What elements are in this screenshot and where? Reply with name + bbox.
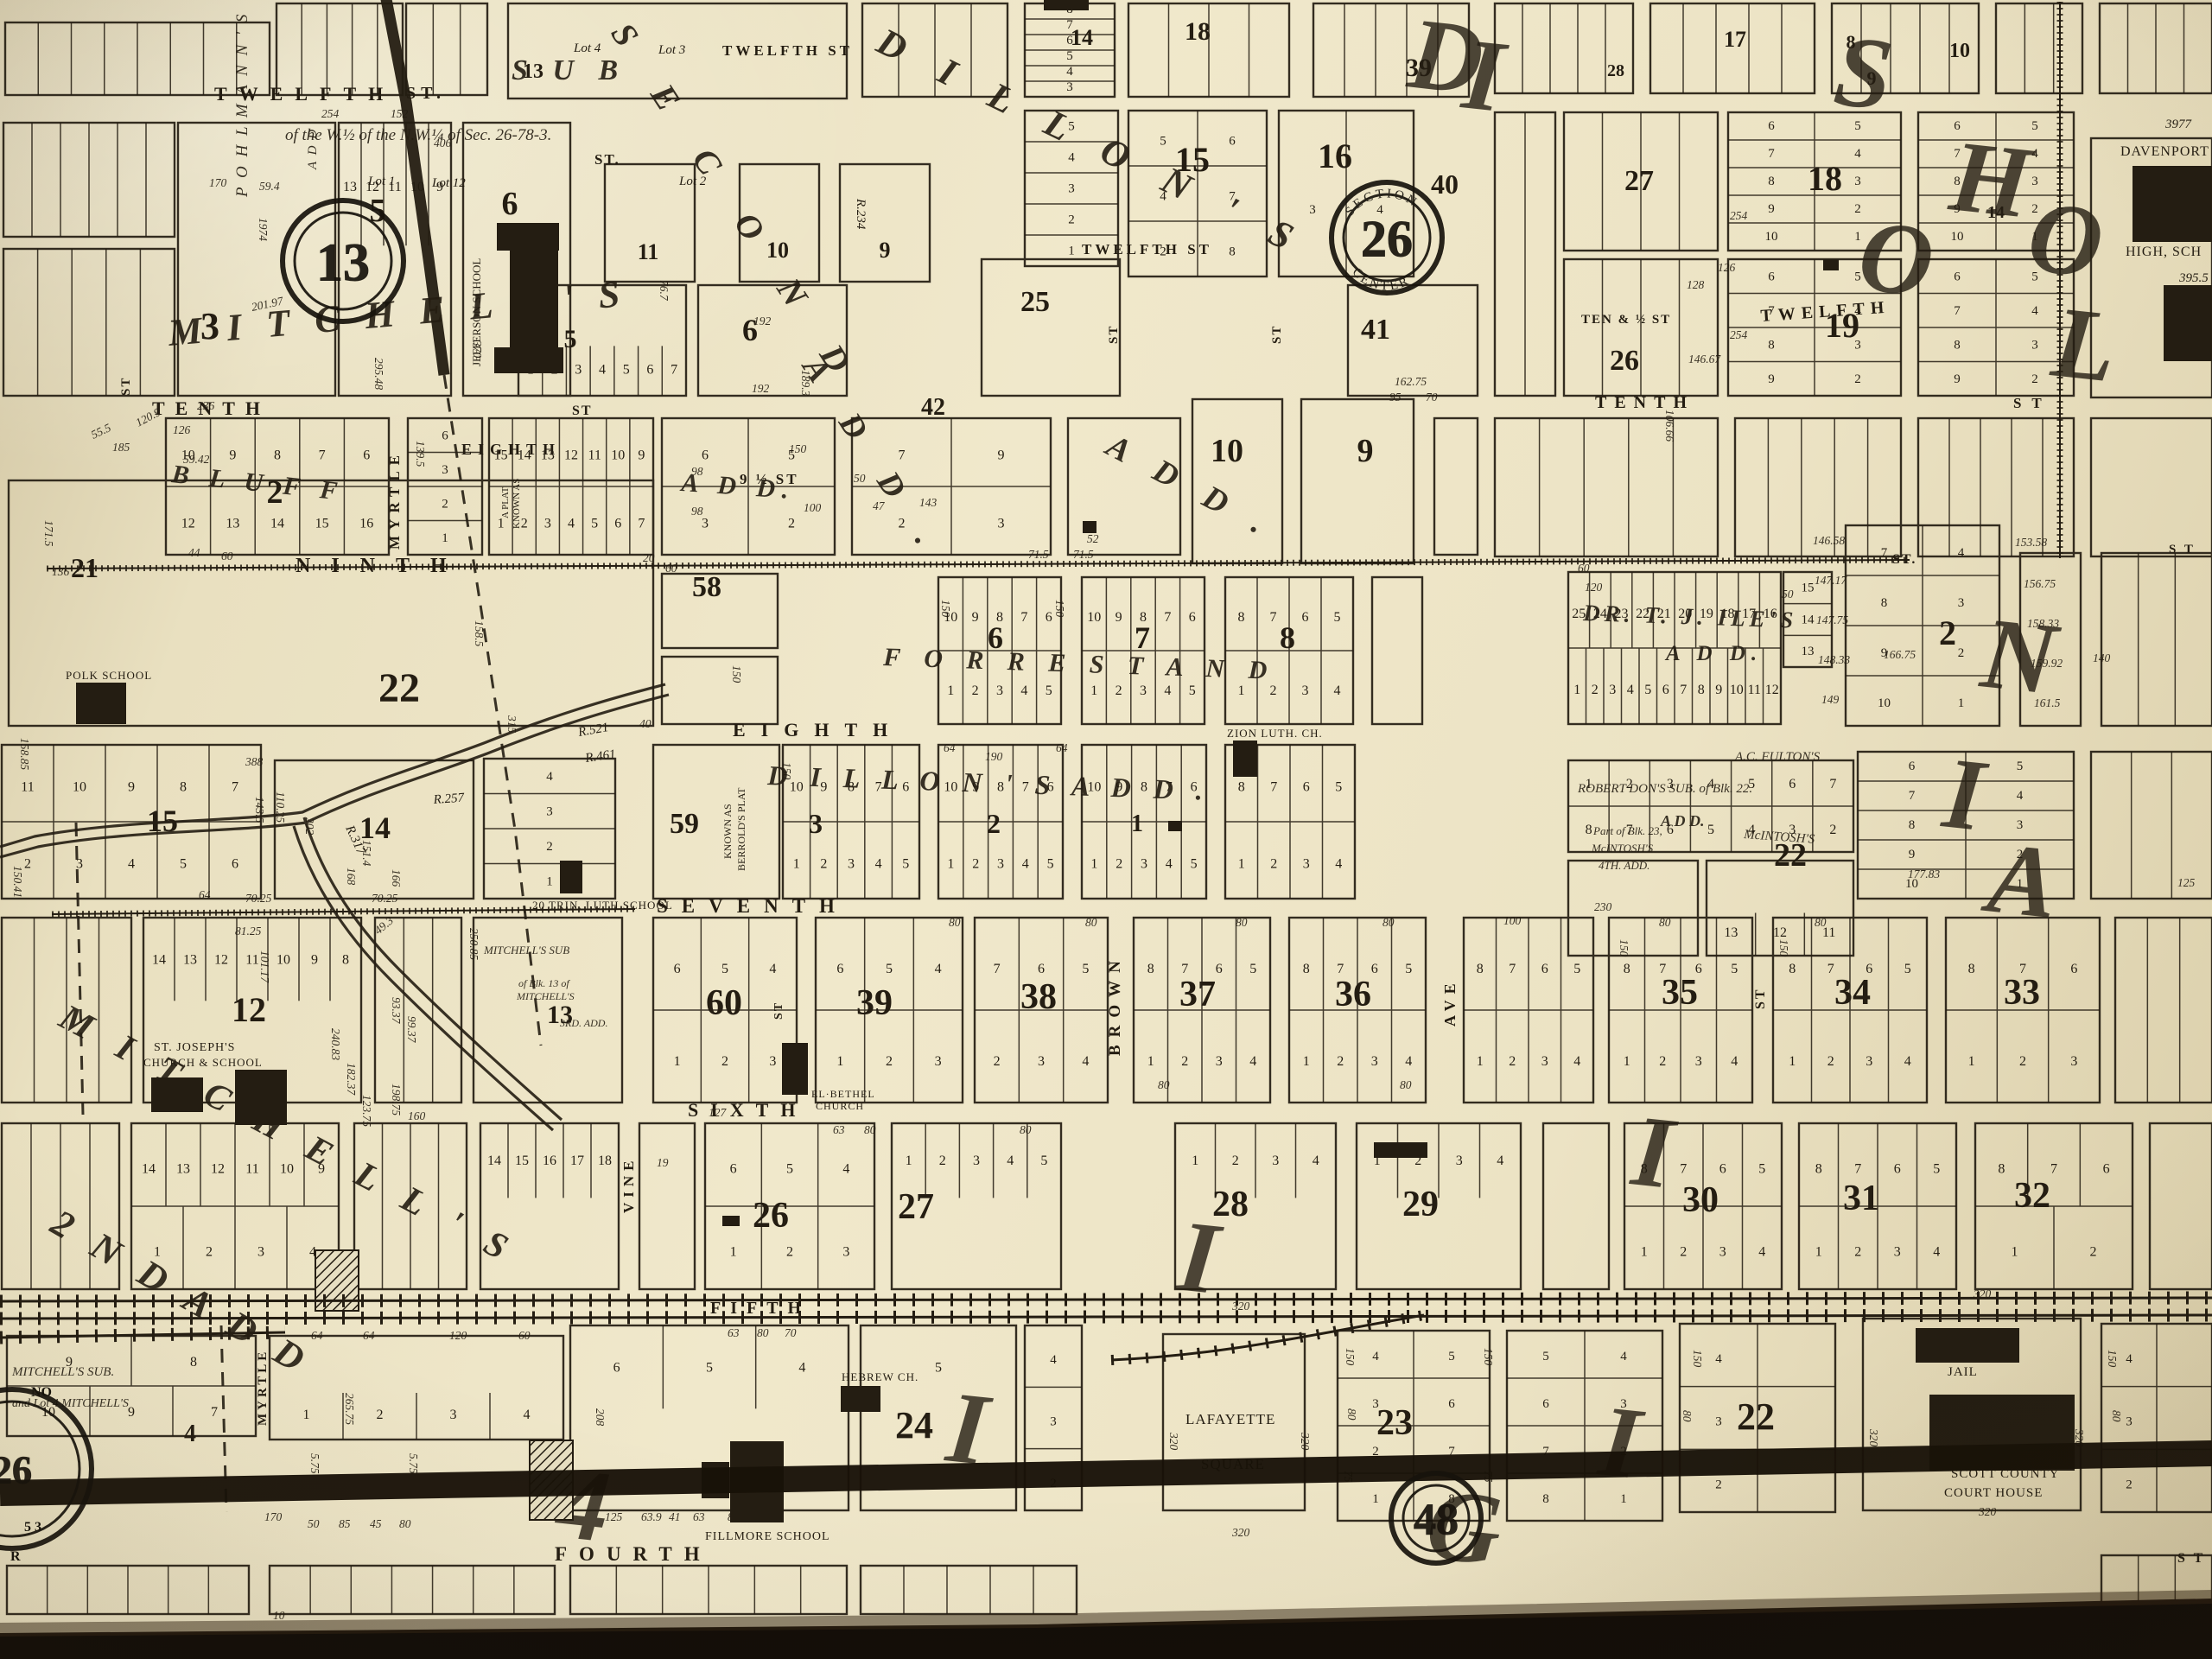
dimension-label: 150.41 [11,866,24,898]
street-label: TWELFTH ST [722,42,853,59]
lot-number: 4 [1573,1054,1580,1069]
lot-number: 6 [613,1361,620,1376]
dimension-label: 192 [752,382,770,395]
lot-number: 2 [1270,856,1277,871]
lot-number: 3 [1141,856,1147,871]
block-number: 3 [200,305,219,347]
dimension-label: 5.75 [308,1453,321,1474]
block [1495,418,1718,556]
dimension-label: 388 [245,755,264,768]
lot-number: 2 [2019,1054,2026,1069]
dimension-label: 150 [939,600,952,618]
lot-number: 12 [211,1162,225,1177]
ghost-letter: I [1625,1093,1681,1211]
lot-number: 9 [998,448,1005,462]
block-number: 36 [1335,975,1371,1014]
dimension-label: 320 [1231,1526,1250,1539]
stamp-number: 26 [1361,211,1413,268]
addition-label: of Blk. 13 of [518,977,570,989]
lot-number: 6 [1662,683,1669,697]
lot-number: 4 [1904,1054,1911,1069]
block-number: 2 [1939,613,1956,652]
annotation-label: A PLAT [500,486,511,518]
building [2133,166,2212,242]
lot-number: 7 [1768,147,1775,161]
dimension-label: 80 [757,1326,769,1339]
dimension-label: 170 [264,1510,283,1523]
building [1168,821,1182,831]
street-label: ST [572,404,593,418]
lot-number: 1 [836,1054,843,1069]
block [1434,418,1478,555]
street-label: ST [119,377,133,396]
lot-number: 1 [947,856,954,871]
lot-number: 3 [2070,1054,2077,1069]
lot-number: 13 [183,953,197,968]
block-number: 31 [1843,1179,1879,1218]
lot-number: 4 [1627,683,1634,697]
lot-number: 1 [1090,683,1097,698]
lot-number: 1 [2012,1245,2018,1260]
dimension-label: 171.5 [42,520,55,547]
lot-number: 7 [1827,962,1834,976]
lot-number: 8 [1477,962,1484,976]
lot-number: 6 [1303,779,1310,794]
block [662,657,778,724]
block [270,1566,555,1614]
dimension-label: 150 [1618,939,1630,957]
lot-number: 1 [1477,1054,1484,1069]
dimension-label: 95 [1389,391,1402,404]
dimension-label: 100 [1503,914,1522,927]
lot-number: 7 [1680,1162,1687,1177]
lot-number: 8 [1586,823,1592,837]
stamp-number: 13 [316,233,370,292]
lot-number: 4 [1164,683,1171,698]
annotation-label: KNOWN AS [512,479,522,529]
street-label: EIGHTH [461,441,561,458]
block-number: 9 [1867,67,1877,89]
lot-number: 3 [1371,1054,1378,1069]
lot-number: 2 [206,1245,213,1260]
dimension-label: 143.5 [253,797,266,823]
lot-number: 6 [1909,760,1916,773]
lot-number: 3 [544,516,551,531]
note-label: R.234 [854,198,868,230]
addition-label: A D D . [1099,427,1281,547]
block-number: 25 [1020,286,1050,318]
street-label: SEVENTH [657,895,849,917]
landmark-label: CHURCH [816,1100,864,1112]
block-number: 10 [1949,40,1970,62]
lot-number: 5 [1731,962,1738,976]
lot-number: 8 [1229,245,1236,259]
dimension-label: 236 [197,399,215,412]
block [1372,577,1422,724]
lot-number: 2 [721,1054,728,1069]
landmark-label: JAIL [1948,1365,1978,1379]
street-label: BROWN [1106,953,1124,1056]
lot-number: 10 [280,1162,294,1177]
lot-number: 4 [1066,65,1073,79]
lot-number: 5 [786,1162,793,1177]
addition-label: MITCHELL'S SUB [483,944,569,957]
lot-number: 4 [1372,1350,1379,1363]
dimension-label: 80 [1345,1408,1358,1421]
lot-number: 5 [935,1361,942,1376]
block-number: 38 [1020,977,1057,1017]
dimension-label: 254 [321,107,340,120]
dimension-label: 50 [1782,588,1794,601]
lot-number: 4 [769,962,776,976]
lot-number: 4 [1335,856,1342,871]
lot-number: 6 [836,962,843,976]
lot-number: 1 [1854,230,1861,244]
dimension-label: 185 [112,441,130,454]
lot-number: 3 [998,516,1005,531]
lot-number: 6 [1894,1162,1901,1177]
lot-number: 3 [848,856,855,871]
dimension-label: 63.9 [641,1510,662,1523]
lot-number: 6 [674,962,681,976]
dimension-label: 5.75 [407,1453,420,1474]
dimension-label: 370 [471,340,484,359]
lot-number: 3 [1050,1415,1057,1429]
lot-number: 2 [1680,1245,1687,1260]
lot-number: 14 [1802,613,1815,626]
lot-number: 2 [1854,202,1861,216]
block [1568,861,1698,956]
dimension-label: 182.37 [345,1063,358,1096]
dimension-label: 80 [1158,1078,1170,1091]
addition-label: 4TH. ADD. [1599,859,1649,872]
dimension-label: 101.17 [258,950,271,983]
block-number: 7 [1135,620,1150,655]
dimension-label: 63 [833,1123,845,1136]
block [375,918,461,1103]
lot-number: 13 [226,516,239,531]
building [2164,285,2212,361]
lot-number: 1 [793,856,800,871]
ghost-letter: O [2023,180,2107,300]
lot-number: 8 [1968,962,1975,976]
lot-number: 7 [899,448,906,462]
lot-number: 8 [1147,962,1154,976]
block-number: 30 [1682,1180,1719,1220]
block [2150,1123,2212,1289]
dimension-label: 265.75 [343,1393,356,1425]
lot-number: 15 [515,1154,529,1168]
lot-number: 3 [973,1154,980,1168]
lot-number: 4 [1933,1245,1940,1260]
lot-number: 5 [591,516,598,531]
dimension-label: 80 [399,1517,411,1530]
landmark-label: ST. JOSEPH'S [154,1041,235,1054]
lot-number: 2 [786,1245,793,1260]
dimension-label: 55.5 [89,421,113,442]
lot-number: 8 [1954,338,1961,352]
stamp-number: 48 [1414,1496,1459,1545]
street-label: SIXTH [688,1099,807,1121]
block-number: 2 [267,474,283,511]
lot-number: 3 [2126,1415,2133,1429]
lot-number: 7 [1829,777,1836,791]
dimension-label: 150 [789,442,807,455]
dimension-label: 150 [1344,1348,1357,1366]
block-number: 6 [502,186,518,222]
lot-number: 3 [1216,1054,1223,1069]
dimension-label: 80 [2110,1410,2123,1422]
lot-number: 5 [1405,962,1412,976]
lot-number: 4 [599,362,606,377]
block-number: 11 [638,239,659,264]
lot-number: 5 [1707,823,1714,837]
lot-number: 3 [575,362,582,377]
dimension-label: 127 [709,1106,728,1119]
lot-number: 4 [2031,304,2038,318]
lot-number: 2 [1829,823,1836,837]
lot-number: 9 [1909,848,1916,861]
addition-label: DR. T. J. ILE'S [1582,600,1798,633]
lot-number: 1 [1958,696,1965,710]
annotation-label: BERROLD'S PLAT [735,787,747,871]
dimension-label: 40 [639,717,652,730]
lot-number: 7 [1270,610,1277,625]
dimension-label: 64 [311,1329,323,1342]
lot-number: 2 [972,683,979,698]
block-number: 40 [1431,168,1459,200]
annotation-label: KNOWN AS [721,804,734,859]
lot-number: 4 [1497,1154,1503,1168]
block-number: 5 [564,325,577,353]
lot-number: 9 [1715,683,1722,697]
lot-number: 6 [1768,119,1775,133]
dimension-label: 100 [804,501,822,514]
lot-number: 6 [1371,962,1378,976]
block [1301,399,1414,563]
lot-number: 8 [1881,596,1888,610]
block-number: 16 [1318,137,1352,175]
dimension-label: 98 [691,505,703,518]
dimension-label: 158.33 [2027,617,2059,630]
addition-label: MITCHELL'S SUB. [11,1365,114,1379]
lot-number: 13 [1724,925,1738,940]
dimension-label: 44 [188,546,200,559]
block-number: 32 [2014,1176,2050,1216]
dimension-label: 146.67 [1688,353,1721,365]
note-label: R.461 [583,747,616,766]
lot-number: 5 [1249,962,1256,976]
building [494,347,563,373]
lot-number: 1 [674,1054,681,1069]
lot-number: 4 [1958,546,1965,560]
lot-number: 8 [1998,1162,2005,1177]
block-number: 28 [1212,1185,1249,1224]
lot-number: 6 [614,516,621,531]
lot-number: 3 [1958,596,1965,610]
building [1823,259,1839,270]
lot-number: 3 [1456,1154,1463,1168]
block-number: 33 [2004,973,2040,1013]
lot-number: 9 [638,448,645,462]
building [151,1077,203,1112]
lot-number: 5 [1066,49,1073,63]
lot-number: 13 [176,1162,190,1177]
lot-number: 8 [1789,962,1796,976]
lot-number: 3 [546,805,553,819]
lot-number: 16 [359,516,373,531]
dimension-label: 320 [1978,1505,1997,1518]
lot-number: 5 [1758,1162,1765,1177]
lot-number: 12 [564,448,578,462]
lot-number: 10 [611,448,625,462]
block-number: 35 [1662,973,1698,1013]
dimension-label: 120 [449,1329,467,1342]
dimension-label: 147.17 [1815,574,1847,587]
dimension-label: 166.75 [1884,648,1916,661]
dimension-label: 189.3 [799,370,812,397]
addition-label: A D D. [1664,642,1763,665]
block [1918,418,2074,556]
street-label: ST [1270,325,1284,344]
note-label: Lot 2 [678,175,707,188]
lot-number: 2 [1270,683,1277,698]
lot-number: 8 [1909,818,1916,832]
dimension-label: 63 [728,1326,740,1339]
lot-number: 3 [1038,1054,1045,1069]
lot-number: 12 [214,953,228,968]
lot-number: 1 [1238,856,1245,871]
lot-number: 15 [315,516,329,531]
lot-number: 2 [1592,683,1599,697]
lot-number: 5 [902,856,909,871]
dimension-label: 166 [390,869,403,887]
lot-number: 1 [1624,1054,1630,1069]
addition-label: S E C O N D [603,16,870,397]
lot-number: 10 [276,953,290,968]
lot-number: 3 [1272,1154,1279,1168]
lot-number: 8 [1238,610,1245,625]
dimension-label: 19 [657,1156,669,1169]
lot-number: 6 [442,429,448,442]
dimension-label: 320 [1231,1300,1250,1313]
lot-number: 7 [1020,610,1027,625]
lot-number: 5 [1573,962,1580,976]
lot-number: 3 [1719,1245,1726,1260]
plat-map-svg: 8765431312111091234567543215426783467891… [0,0,2212,1659]
lot-number: 2 [1854,372,1861,386]
dimension-label: 254 [1730,328,1748,341]
block-number: 19 [1825,306,1859,345]
lot-number: 13 [1802,645,1815,658]
lot-number: 11 [1748,683,1761,697]
lot-number: 1 [1090,856,1097,871]
landmark-label: COURT HOUSE [1944,1486,2043,1500]
lot-number: 6 [1542,1397,1549,1411]
lot-number: 6 [363,448,370,462]
lot-number: 14 [270,516,284,531]
landmark-label: CHURCH & SCHOOL [143,1056,263,1069]
block-number: 22 [1774,837,1807,874]
building [841,1386,880,1412]
lot-number: 2 [939,1154,946,1168]
lot-number: 6 [1954,270,1961,283]
street-label: EIGHTH [733,719,903,741]
lot-number: 2 [1659,1054,1666,1069]
lot-number: 14 [487,1154,501,1168]
block [840,164,930,282]
block-number: 18 [1185,17,1211,46]
block-number: 8 [1847,31,1856,53]
note-label: R.521 [576,721,610,740]
block-number: 22 [378,665,420,711]
lot-number: 2 [1715,1478,1722,1491]
lot-number: 9 [1768,372,1775,386]
lot-number: 6 [2070,962,2077,976]
dimension-label: 80 [1681,1410,1694,1422]
lot-number: 6 [1448,1397,1455,1411]
lot-number: 6 [1229,135,1236,149]
lot-number: 7 [1909,789,1916,803]
dimension-label: 80 [1815,916,1827,929]
lot-number: 10 [1087,610,1101,625]
lot-number: 2 [1509,1054,1516,1069]
street-label: ST [1107,325,1121,344]
lot-number: 1 [1968,1054,1975,1069]
lot-number: 8 [1238,779,1245,794]
dimension-label: 153.58 [2015,536,2047,549]
lot-number: 8 [1815,1162,1822,1177]
block-number: 28 [1607,61,1624,80]
dimension-label: 190 [985,750,1003,763]
stamp-arc-text: CENTER [1350,265,1413,293]
block-number: 10 [766,238,789,263]
lot-number: 4 [1022,856,1029,871]
lot-number: 3 [1854,175,1861,188]
lot-number: 6 [1768,270,1775,283]
block-number: 41 [1361,314,1390,346]
lot-number: 4 [842,1162,849,1177]
dimension-label: 198.75 [390,1084,403,1116]
dimension-label: 136 [52,565,70,578]
lot-number: 2 [1958,646,1965,660]
dimension-label: 254 [1730,209,1748,222]
lot-number: 12 [1765,683,1779,697]
dimension-label: 106.66 [1663,410,1676,442]
dimension-label: 52 [1087,532,1099,545]
landmark-label: HIGH, SCH [2126,245,2202,259]
lot-number: 4 [1731,1054,1738,1069]
lot-number: 6 [702,448,709,462]
lot-number: 2 [1116,856,1122,871]
dimension-label: 126 [173,423,191,436]
lot-number: 4 [875,856,882,871]
lot-number: 1 [1238,683,1245,698]
lot-number: 3 [257,1245,264,1260]
building [1233,741,1257,777]
block [2101,553,2212,726]
lot-number: 8 [274,448,281,462]
lot-number: 4 [1007,1154,1014,1168]
lot-number: 2 [2126,1478,2133,1491]
lot-number: 4 [1082,1054,1089,1069]
dimension-label: 128 [1687,278,1705,291]
dimension-label: 150 [780,762,793,780]
lot-number: 6 [1719,1162,1726,1177]
lot-number: 1 [1789,1054,1796,1069]
lot-number: 5 [623,362,630,377]
note-label: 3977 [2164,118,2193,131]
